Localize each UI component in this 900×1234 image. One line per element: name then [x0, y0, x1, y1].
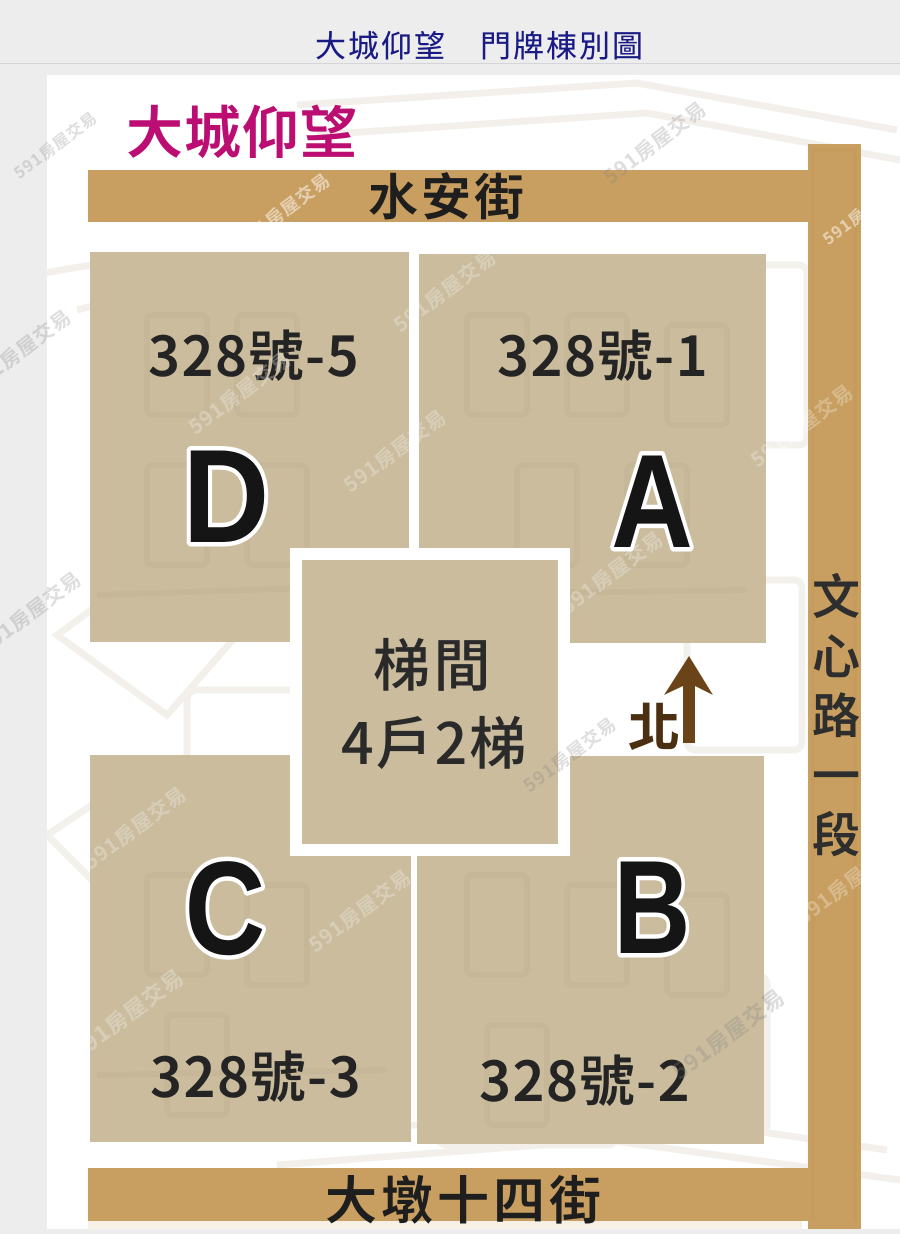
svg-text:C: C	[185, 835, 266, 983]
svg-text:B: B	[614, 833, 691, 982]
svg-text:D: D	[183, 421, 269, 570]
